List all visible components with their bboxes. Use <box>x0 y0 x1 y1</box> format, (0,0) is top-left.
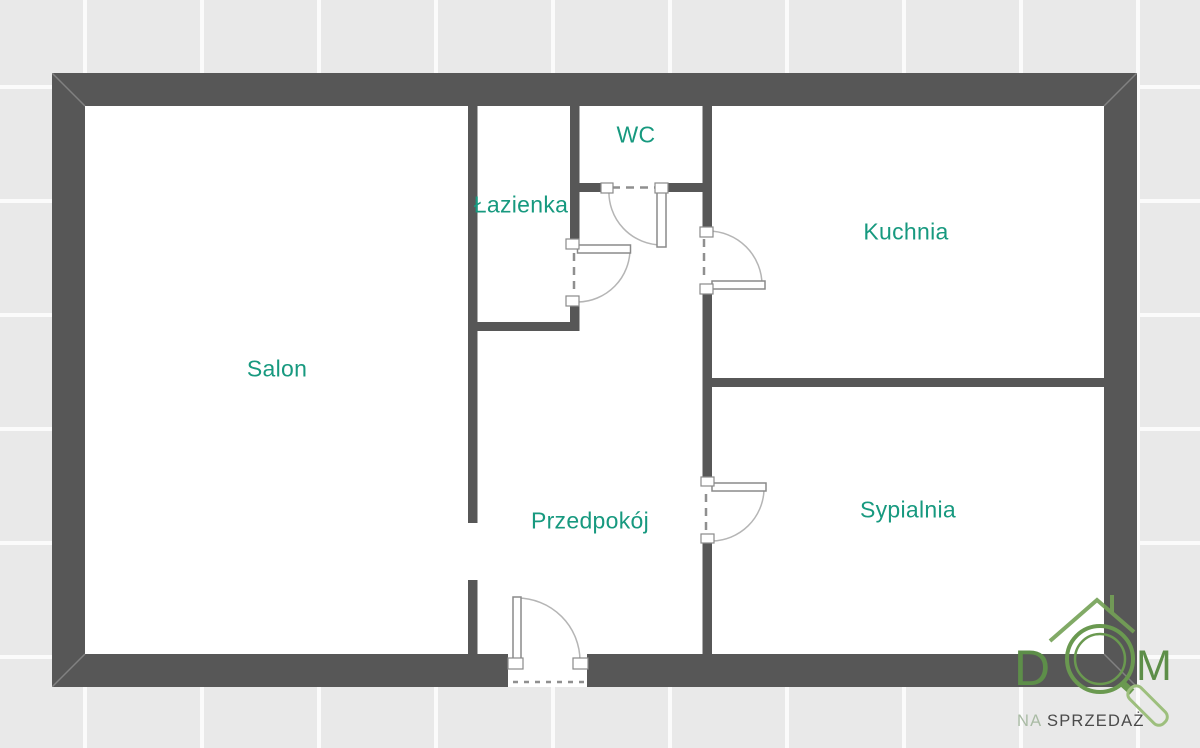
logo-tagline-na: NA <box>1017 712 1042 730</box>
logo-dom-na-sprzedaz: D M NA SPRZEDAŻ <box>0 0 1200 748</box>
logo-tagline-sprzedaz: SPRZEDAŻ <box>1047 711 1145 730</box>
logo-letter-d: D <box>1014 640 1050 696</box>
logo-letter-m: M <box>1136 642 1172 690</box>
floorplan-canvas: Salon Łazienka WC Kuchnia Przedpokój Syp… <box>0 0 1200 748</box>
